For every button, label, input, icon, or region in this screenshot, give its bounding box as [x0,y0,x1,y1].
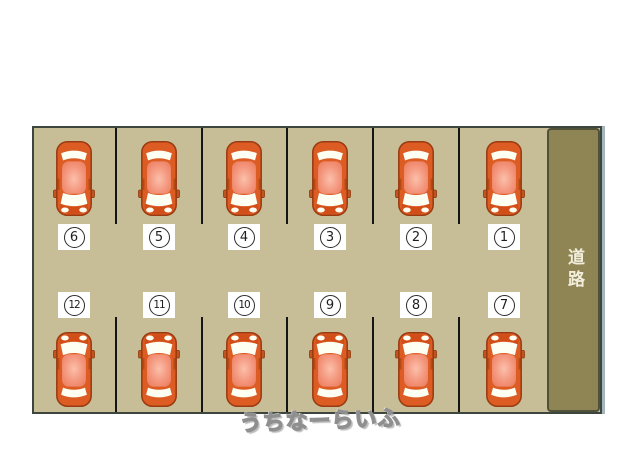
space-label-9: 9 [314,292,346,318]
space-number: 11 [149,295,170,316]
stall-divider [372,317,374,412]
space-number: 8 [406,295,427,316]
space-label-6: 6 [58,224,90,250]
car-icon-space-4 [223,140,265,217]
space-number: 7 [494,295,515,316]
stall-divider [372,128,374,224]
car-icon-space-10 [223,331,265,408]
car-icon-space-7 [483,331,525,408]
stall-divider [201,317,203,412]
car-icon-space-6 [53,140,95,217]
space-label-8: 8 [400,292,432,318]
car-icon-space-8 [395,331,437,408]
car-icon-space-2 [395,140,437,217]
stall-divider [458,128,460,224]
space-label-2: 2 [400,224,432,250]
space-number: 4 [234,227,255,248]
car-icon-space-9 [309,331,351,408]
space-label-4: 4 [228,224,260,250]
stall-divider [115,128,117,224]
parking-diagram: 6 5 4 3 2 1 12 11 10 9 8 7 道路 うちなーらいふ [0,0,640,452]
space-number: 10 [234,295,255,316]
space-label-5: 5 [143,224,175,250]
road-strip: 道路 [547,128,600,412]
space-label-10: 10 [228,292,260,318]
space-number: 2 [406,227,427,248]
space-number: 9 [320,295,341,316]
space-label-1: 1 [488,224,520,250]
space-label-12: 12 [58,292,90,318]
space-label-7: 7 [488,292,520,318]
car-icon-space-1 [483,140,525,217]
car-icon-space-11 [138,331,180,408]
car-icon-space-12 [53,331,95,408]
space-number: 1 [494,227,515,248]
space-number: 6 [64,227,85,248]
space-number: 5 [149,227,170,248]
parking-lot: 6 5 4 3 2 1 12 11 10 9 8 7 道路 [32,126,602,414]
car-icon-space-3 [309,140,351,217]
stall-divider [286,128,288,224]
space-number: 12 [64,295,85,316]
stall-divider [115,317,117,412]
space-label-3: 3 [314,224,346,250]
space-number: 3 [320,227,341,248]
road-label: 道路 [565,248,582,292]
space-label-11: 11 [143,292,175,318]
stall-divider [286,317,288,412]
stall-divider [201,128,203,224]
car-icon-space-5 [138,140,180,217]
stall-divider [458,317,460,412]
